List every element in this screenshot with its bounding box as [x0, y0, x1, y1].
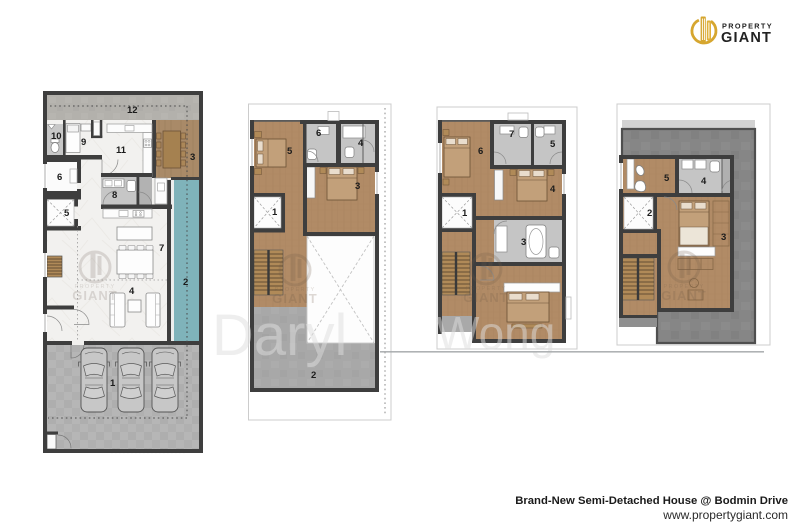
svg-text:3: 3: [355, 181, 360, 192]
svg-text:9: 9: [81, 137, 86, 148]
svg-text:GIANT: GIANT: [721, 30, 772, 46]
svg-text:5: 5: [287, 146, 293, 157]
svg-text:4: 4: [550, 184, 556, 195]
svg-text:8: 8: [112, 190, 117, 201]
svg-text:1: 1: [110, 378, 116, 389]
svg-text:Brand-New Semi-Detached House: Brand-New Semi-Detached House @ Bodmin D…: [515, 495, 788, 507]
svg-text:3: 3: [521, 237, 526, 248]
svg-text:3: 3: [190, 152, 195, 163]
svg-text:11: 11: [116, 145, 127, 156]
svg-text:6: 6: [478, 146, 483, 157]
svg-text:12: 12: [127, 105, 138, 116]
svg-text:6: 6: [57, 172, 62, 183]
svg-text:Daryl: Daryl: [212, 303, 347, 368]
svg-text:7: 7: [159, 243, 164, 254]
svg-text:7: 7: [509, 129, 514, 140]
svg-text:3: 3: [721, 232, 726, 243]
svg-text:2: 2: [183, 277, 188, 288]
svg-text:4: 4: [358, 138, 364, 149]
svg-text:4: 4: [701, 176, 707, 187]
svg-text:4: 4: [129, 286, 135, 297]
svg-text:10: 10: [51, 131, 62, 142]
svg-text:5: 5: [664, 173, 670, 184]
svg-text:www.propertygiant.com: www.propertygiant.com: [662, 508, 788, 522]
svg-text:6: 6: [316, 128, 321, 139]
svg-text:GIANT: GIANT: [661, 288, 706, 303]
svg-text:GIANT: GIANT: [72, 288, 117, 303]
svg-text:GIANT: GIANT: [463, 290, 508, 305]
svg-text:5: 5: [550, 139, 556, 150]
svg-text:1: 1: [272, 207, 278, 218]
svg-text:1: 1: [462, 208, 468, 219]
svg-text:2: 2: [311, 370, 316, 381]
svg-text:2: 2: [647, 208, 652, 219]
svg-text:5: 5: [64, 208, 70, 219]
